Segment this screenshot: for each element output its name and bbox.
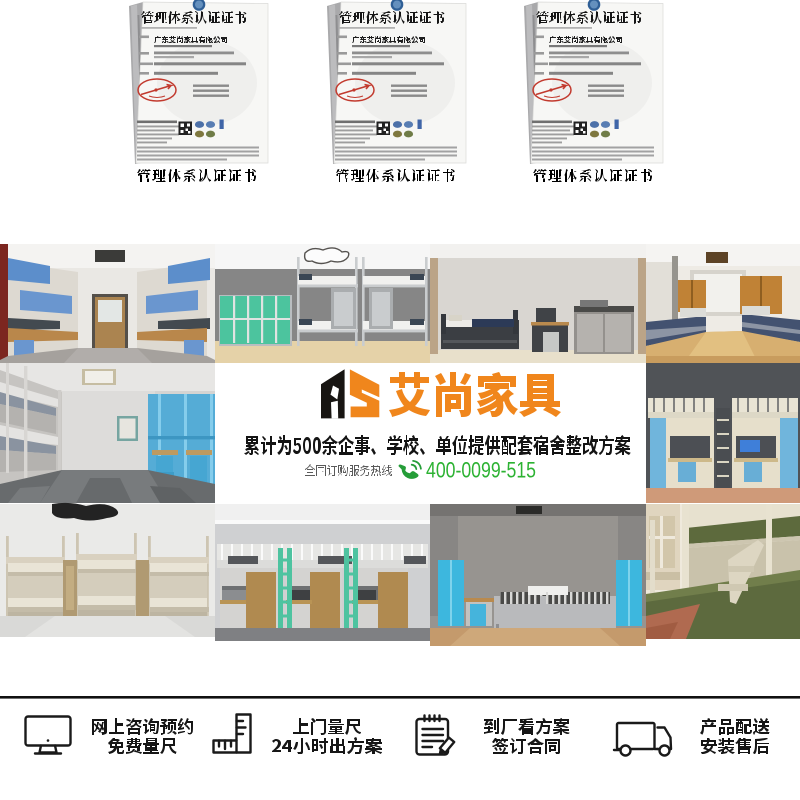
svg-text:400-0099-515: 400-0099-515 xyxy=(426,458,536,483)
